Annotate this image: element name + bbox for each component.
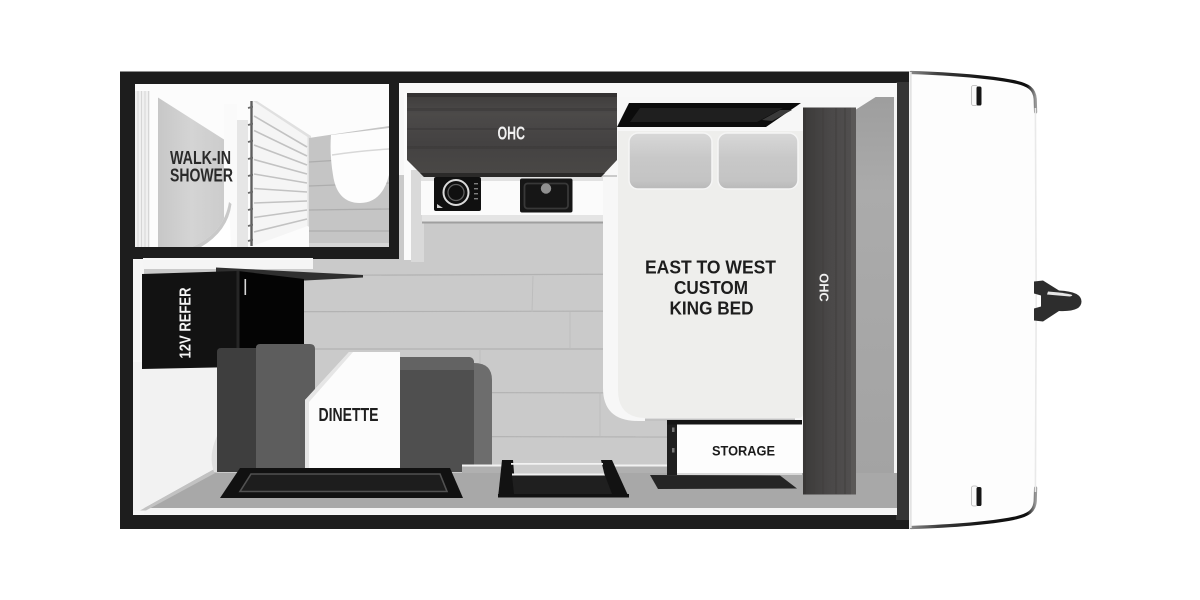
svg-text:CUSTOM: CUSTOM — [674, 278, 748, 298]
svg-text:DINETTE: DINETTE — [319, 404, 379, 425]
svg-text:12V REFER: 12V REFER — [178, 288, 195, 359]
svg-text:OHC: OHC — [817, 273, 831, 302]
svg-text:SHOWER: SHOWER — [170, 166, 233, 186]
svg-text:KING BED: KING BED — [670, 299, 754, 319]
svg-text:EAST TO WEST: EAST TO WEST — [645, 258, 776, 278]
svg-text:OHC: OHC — [498, 124, 526, 144]
svg-text:STORAGE: STORAGE — [712, 444, 775, 460]
